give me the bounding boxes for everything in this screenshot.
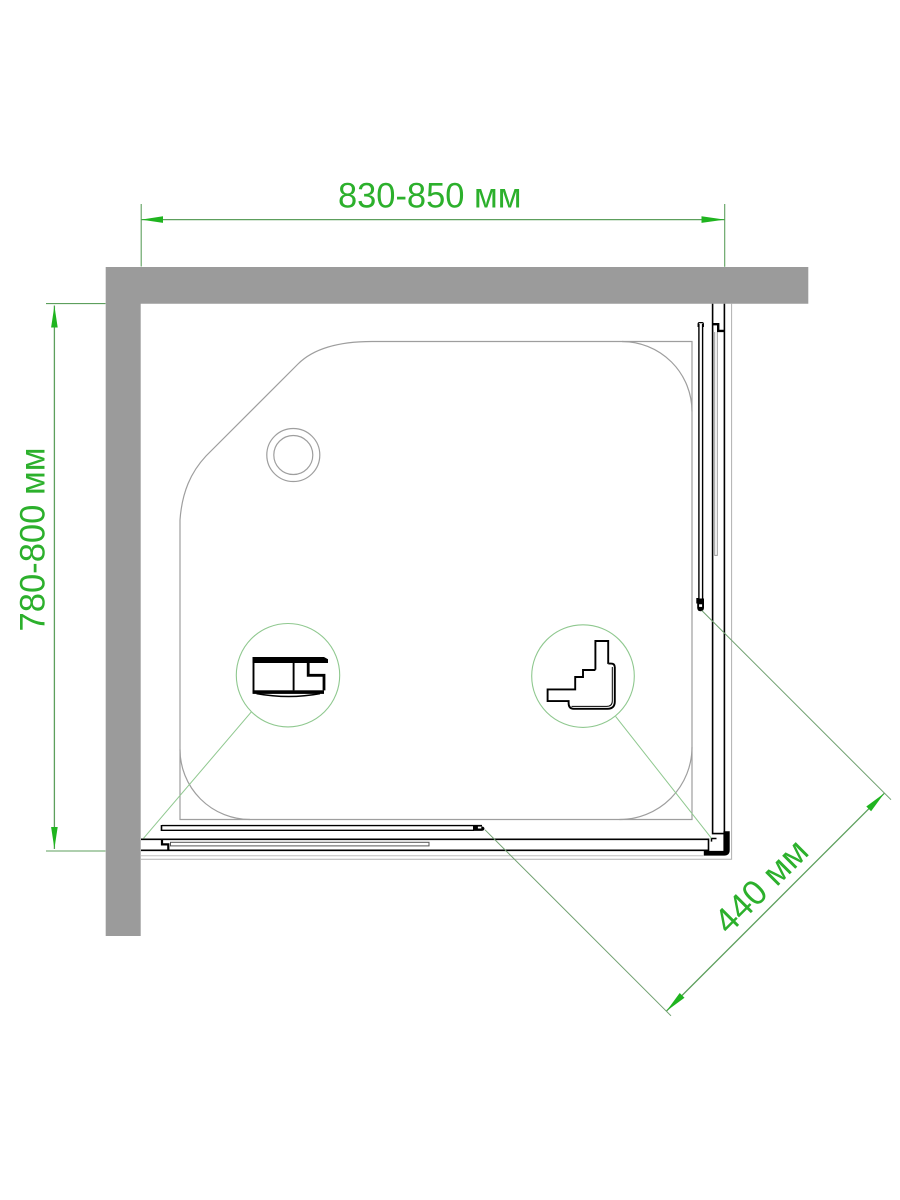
svg-text:780-800 мм: 780-800 мм (14, 448, 53, 632)
svg-text:830-850 мм: 830-850 мм (338, 177, 522, 216)
